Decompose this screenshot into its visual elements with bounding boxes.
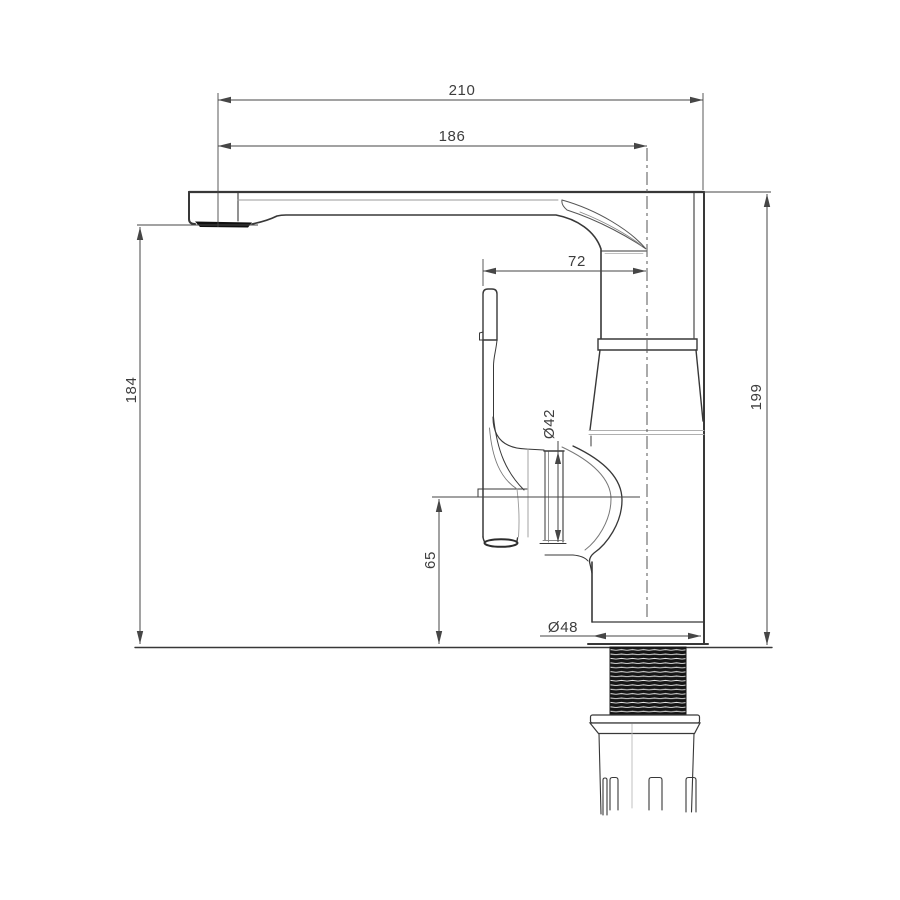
label-spout-height: 184 — [123, 377, 140, 404]
label-body-diameter: Ø42 — [541, 409, 558, 439]
threaded-shank — [610, 647, 686, 715]
body-bulge — [573, 446, 622, 573]
dimension-labels: 210 186 72 184 199 65 Ø42 Ø48 — [123, 82, 765, 636]
label-base-diameter: Ø48 — [548, 619, 578, 636]
label-spout-reach-to-center: 186 — [439, 128, 466, 145]
aerator-band — [195, 222, 252, 228]
label-spout-reach-overall: 210 — [449, 82, 476, 99]
technical-drawing-page: 210 186 72 184 199 65 Ø42 Ø48 — [0, 0, 900, 900]
handle-end-cap — [485, 539, 518, 547]
dim-spout-height — [137, 227, 143, 644]
dim-body-diameter — [555, 441, 561, 542]
dim-overall-height — [764, 194, 770, 645]
label-overall-height: 199 — [748, 384, 765, 411]
dimension-annotations — [137, 93, 771, 645]
spout-end-blade — [562, 200, 646, 249]
faucet-dimension-drawing: 210 186 72 184 199 65 Ø42 Ø48 — [0, 0, 900, 900]
mounting-sleeve — [599, 724, 696, 815]
handle-lever — [480, 289, 525, 547]
faucet-outline — [135, 192, 772, 815]
dim-handle-to-center — [483, 268, 646, 274]
dim-base-to-pivot — [436, 499, 442, 644]
mounting-nut — [590, 723, 700, 734]
label-base-to-pivot: 65 — [422, 551, 439, 569]
dim-spout-reach-to-center — [218, 143, 647, 149]
mounting-washer — [591, 715, 700, 723]
handle-grip — [483, 289, 497, 340]
label-handle-to-center: 72 — [568, 253, 586, 270]
